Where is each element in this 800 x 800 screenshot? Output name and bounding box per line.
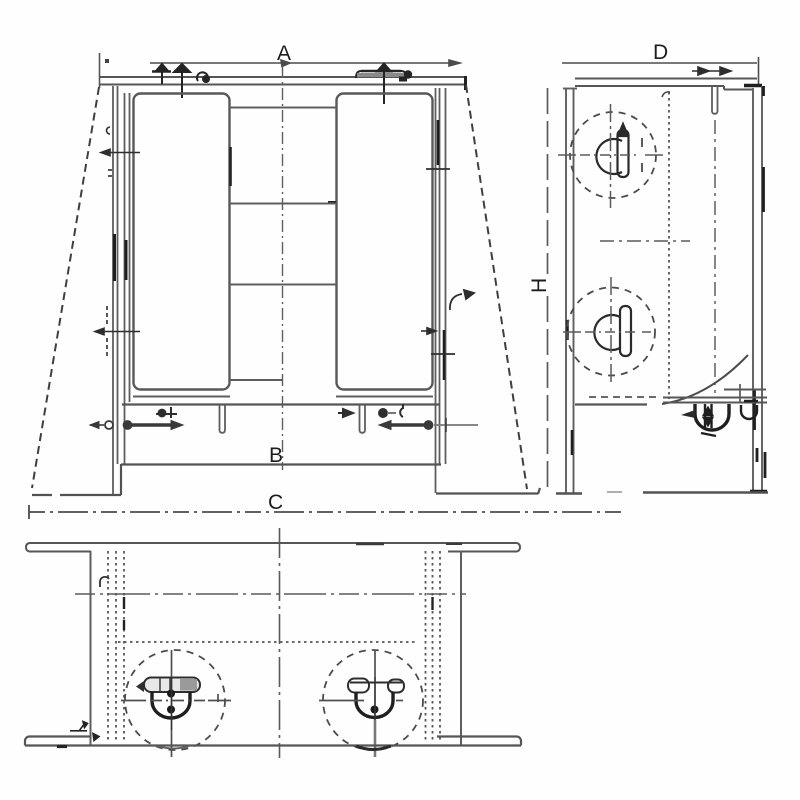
svg-text:D: D bbox=[653, 41, 668, 64]
svg-text:C: C bbox=[268, 491, 283, 514]
svg-text:A: A bbox=[277, 42, 291, 65]
svg-text:B: B bbox=[269, 444, 283, 467]
svg-text:H: H bbox=[528, 278, 551, 293]
